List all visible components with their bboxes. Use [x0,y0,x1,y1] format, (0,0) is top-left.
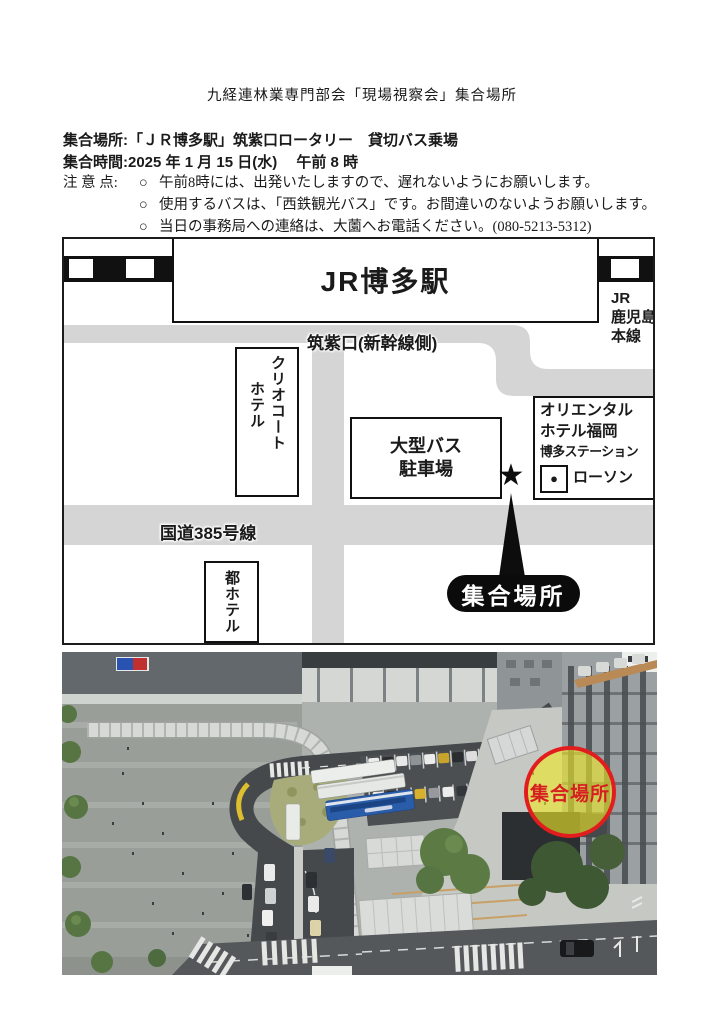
white-truck [312,966,352,975]
page-title: 九経連林業専門部会「現場視察会」集合場所 [0,84,724,105]
note-bullet: ○ [139,172,159,194]
track-tie [69,259,93,278]
miyako-hotel-box: 都ホテル [204,561,259,643]
hotel-clio-court-box: ホテル クリオコート [235,347,299,497]
black-suv [560,940,594,957]
document-page: 九経連林業専門部会「現場視察会」集合場所 集合場所:「ＪＲ博多駅」筑紫口ロータリ… [0,0,724,1024]
meeting-time-line: 集合時間:2025 年 1 月 15 日(水) 午前 8 時 [63,151,358,172]
station-sign [117,658,133,670]
oriental-hotel-box: オリエンタル ホテル福岡 博多ステーション ● ローソン [533,396,655,500]
track-tie [611,259,639,278]
white-bus [286,804,300,840]
lawson-dot-box: ● [540,465,568,493]
meeting-star-icon: ★ [494,459,528,493]
exit-label: 筑紫口(新幹線側) [307,329,437,354]
jr-line-label: JR 鹿児島 本線 [611,289,655,346]
station-buildings [62,652,567,710]
railway-track-right [597,256,653,282]
station-box: JR博多駅 [172,237,599,323]
notes-block: 注 意 点: ○ 午前8時には、出発いたしますので、遅れないようにお願いします。… [63,172,656,239]
meeting-place-value: 「ＪＲ博多駅」筑紫口ロータリー 貸切バス乗場 [128,132,458,149]
route-385-label: 国道385号線 [160,519,256,544]
railway-track-left [64,256,174,282]
track-tie [126,259,154,278]
note-bullet: ○ [139,216,159,238]
notes-list: ○ 午前8時には、出発いたしますので、遅れないようにお願いします。 ○ 使用する… [139,172,656,239]
note-text: 使用するバスは、「西鉄観光バス」です。お間違いのないようお願いします。 [159,194,656,216]
meeting-marker: 集合場所 [524,746,616,838]
meeting-place-balloon: 集合場所 [447,575,580,612]
station-area-map: JR博多駅 筑紫口(新幹線側) JR 鹿児島 本線 ホテル クリオコート 大型バ… [62,237,655,645]
meeting-place-line: 集合場所:「ＪＲ博多駅」筑紫口ロータリー 貸切バス乗場 [63,129,458,150]
lawson-row: ● ローソン [540,465,655,493]
note-text: 当日の事務局への連絡は、大薗へお電話ください。(080-5213-5312) [159,216,592,238]
meeting-time-value: 2025 年 1 月 15 日(水) 午前 8 時 [128,154,358,171]
note-bullet: ○ [139,194,159,216]
note-item: ○ 使用するバスは、「西鉄観光バス」です。お間違いのないようお願いします。 [139,194,656,216]
notes-label: 注 意 点: [63,172,139,239]
note-item: ○ 午前8時には、出発いたしますので、遅れないようにお願いします。 [139,172,656,194]
bus-parking-box: 大型バス 駐車場 [350,417,502,499]
aerial-photo: 集合場所 [62,652,657,975]
route-385-road [64,505,653,545]
vertical-street [312,325,344,643]
meeting-time-label: 集合時間: [63,154,128,171]
meeting-place-label: 集合場所: [63,132,128,149]
note-item: ○ 当日の事務局への連絡は、大薗へお電話ください。(080-5213-5312) [139,216,656,238]
lawson-label: ローソン [573,468,633,489]
note-text: 午前8時には、出発いたしますので、遅れないようにお願いします。 [159,172,599,194]
